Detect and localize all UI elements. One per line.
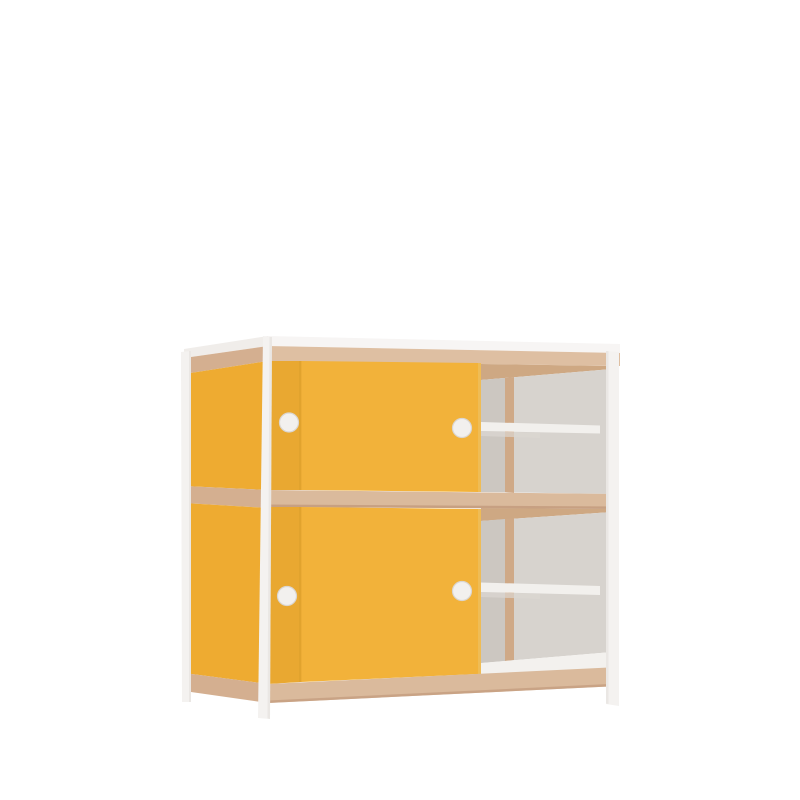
lower-right-door-handle <box>453 582 472 601</box>
upper-door-seam-shadow <box>299 361 302 490</box>
lower-door-edge-face <box>478 509 481 674</box>
lower-front-sliding-door <box>301 507 478 682</box>
lower-door-seam-shadow <box>299 507 302 682</box>
right-post-shadow-edge <box>606 351 609 704</box>
cabinet-render <box>0 0 800 800</box>
upper-right-door-handle <box>453 419 472 438</box>
lower-left-door-handle <box>278 587 297 606</box>
product-render-canvas <box>0 0 800 800</box>
side-panel-lower <box>184 503 268 684</box>
side-panel-upper <box>184 361 268 490</box>
upper-door-edge-face <box>478 363 481 492</box>
upper-left-door-handle <box>280 413 299 432</box>
back-left-post-shadow-edge <box>189 351 191 702</box>
upper-front-sliding-door <box>301 361 478 492</box>
